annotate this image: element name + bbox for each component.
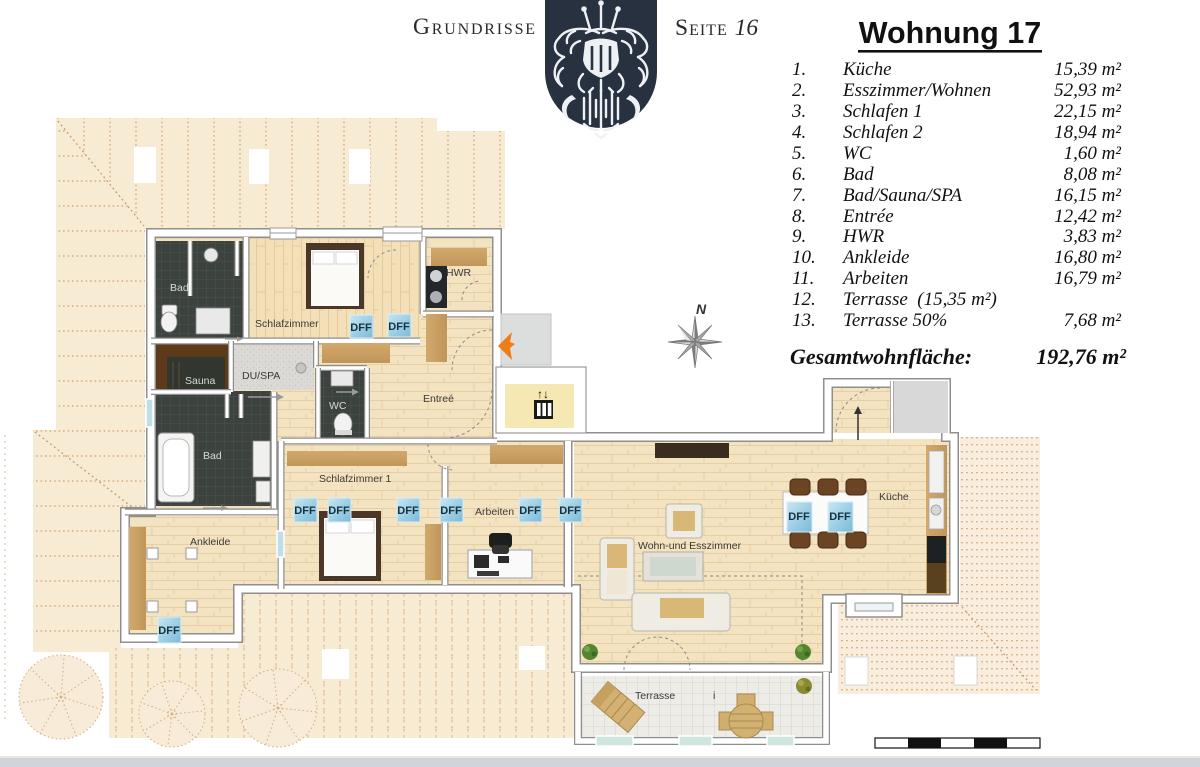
svg-text:15,39 m²: 15,39 m² <box>1054 59 1121 80</box>
svg-text:i: i <box>713 690 715 702</box>
svg-text:DU/SPA: DU/SPA <box>242 370 280 382</box>
svg-text:4.: 4. <box>792 122 806 143</box>
svg-text:DFF: DFF <box>350 322 372 334</box>
svg-text:Ankleide: Ankleide <box>190 536 230 548</box>
svg-text:Sauna: Sauna <box>185 375 216 387</box>
svg-text:DFF: DFF <box>397 505 419 517</box>
svg-text:10.: 10. <box>792 247 816 268</box>
svg-text:3.: 3. <box>791 101 806 122</box>
svg-text:Schlafen 2: Schlafen 2 <box>843 122 923 143</box>
svg-text:1,60 m²: 1,60 m² <box>1064 143 1122 164</box>
svg-text:7,68 m²: 7,68 m² <box>1064 310 1122 331</box>
svg-text:Bad: Bad <box>170 282 189 294</box>
svg-text:HWR: HWR <box>842 226 885 247</box>
svg-text:Küche: Küche <box>879 491 909 503</box>
svg-text:Schlafen 1: Schlafen 1 <box>843 101 923 122</box>
svg-text:DFF: DFF <box>788 511 810 523</box>
svg-text:12,42 m²: 12,42 m² <box>1054 206 1121 227</box>
svg-text:Schlafzimmer: Schlafzimmer <box>255 318 319 330</box>
svg-text:Arbeiten: Arbeiten <box>475 506 514 518</box>
svg-text:13.: 13. <box>792 310 816 331</box>
svg-text:WC: WC <box>843 143 872 164</box>
svg-text:11.: 11. <box>792 268 814 289</box>
svg-text:Terrasse: Terrasse <box>635 690 675 702</box>
svg-text:8.: 8. <box>792 206 806 227</box>
svg-text:16,80 m²: 16,80 m² <box>1054 247 1121 268</box>
svg-text:DFF: DFF <box>294 505 316 517</box>
svg-text:6.: 6. <box>792 164 806 185</box>
svg-text:DFF: DFF <box>829 511 851 523</box>
svg-text:Bad/Sauna/SPA: Bad/Sauna/SPA <box>843 185 962 206</box>
svg-text:Gesamtwohnfläche:: Gesamtwohnfläche: <box>790 344 972 369</box>
svg-text:N: N <box>696 301 707 317</box>
svg-text:1.: 1. <box>792 59 806 80</box>
svg-text:16,15 m²: 16,15 m² <box>1054 185 1121 206</box>
svg-text:18,94 m²: 18,94 m² <box>1054 122 1121 143</box>
svg-text:DFF: DFF <box>328 505 350 517</box>
svg-text:Entrée: Entrée <box>842 206 894 227</box>
svg-text:3,83 m²: 3,83 m² <box>1063 226 1122 247</box>
svg-text:HWR: HWR <box>446 267 471 279</box>
svg-text:5.: 5. <box>792 143 806 164</box>
svg-text:DFF: DFF <box>158 625 180 637</box>
svg-text:8,08 m²: 8,08 m² <box>1064 164 1122 185</box>
svg-text:Bad: Bad <box>843 164 874 185</box>
svg-text:7.: 7. <box>792 185 806 206</box>
svg-text:192,76 m²: 192,76 m² <box>1036 344 1126 369</box>
svg-text:Grundrisse: Grundrisse <box>413 14 537 40</box>
svg-text:WC: WC <box>329 400 347 412</box>
svg-text:Entreé: Entreé <box>423 393 454 405</box>
svg-text:DFF: DFF <box>440 505 462 517</box>
svg-text:9.: 9. <box>792 226 806 247</box>
svg-text:Seite 16: Seite 16 <box>675 15 758 41</box>
svg-text:DFF: DFF <box>519 505 541 517</box>
svg-text:Küche: Küche <box>842 59 892 80</box>
svg-text:Ankleide: Ankleide <box>841 247 909 268</box>
svg-text:Esszimmer/Wohnen: Esszimmer/Wohnen <box>842 80 991 101</box>
svg-text:16,79 m²: 16,79 m² <box>1054 268 1121 289</box>
svg-text:Terrasse 50%: Terrasse 50% <box>843 310 947 331</box>
svg-text:Arbeiten: Arbeiten <box>841 268 908 289</box>
svg-text:Schlafzimmer 1: Schlafzimmer 1 <box>319 473 392 485</box>
svg-text:↑↓: ↑↓ <box>537 387 549 401</box>
svg-text:22,15 m²: 22,15 m² <box>1054 101 1121 122</box>
svg-text:Wohn-und Esszimmer: Wohn-und Esszimmer <box>638 540 742 552</box>
svg-text:2.: 2. <box>792 80 806 101</box>
svg-text:DFF: DFF <box>388 321 410 333</box>
svg-text:Terrasse (15,35 m²): Terrasse (15,35 m²) <box>843 289 997 310</box>
svg-text:DFF: DFF <box>559 505 581 517</box>
svg-text:52,93 m²: 52,93 m² <box>1054 80 1121 101</box>
svg-text:12.: 12. <box>792 289 816 310</box>
svg-text:Bad: Bad <box>203 450 222 462</box>
svg-text:Wohnung 17: Wohnung 17 <box>859 16 1041 50</box>
